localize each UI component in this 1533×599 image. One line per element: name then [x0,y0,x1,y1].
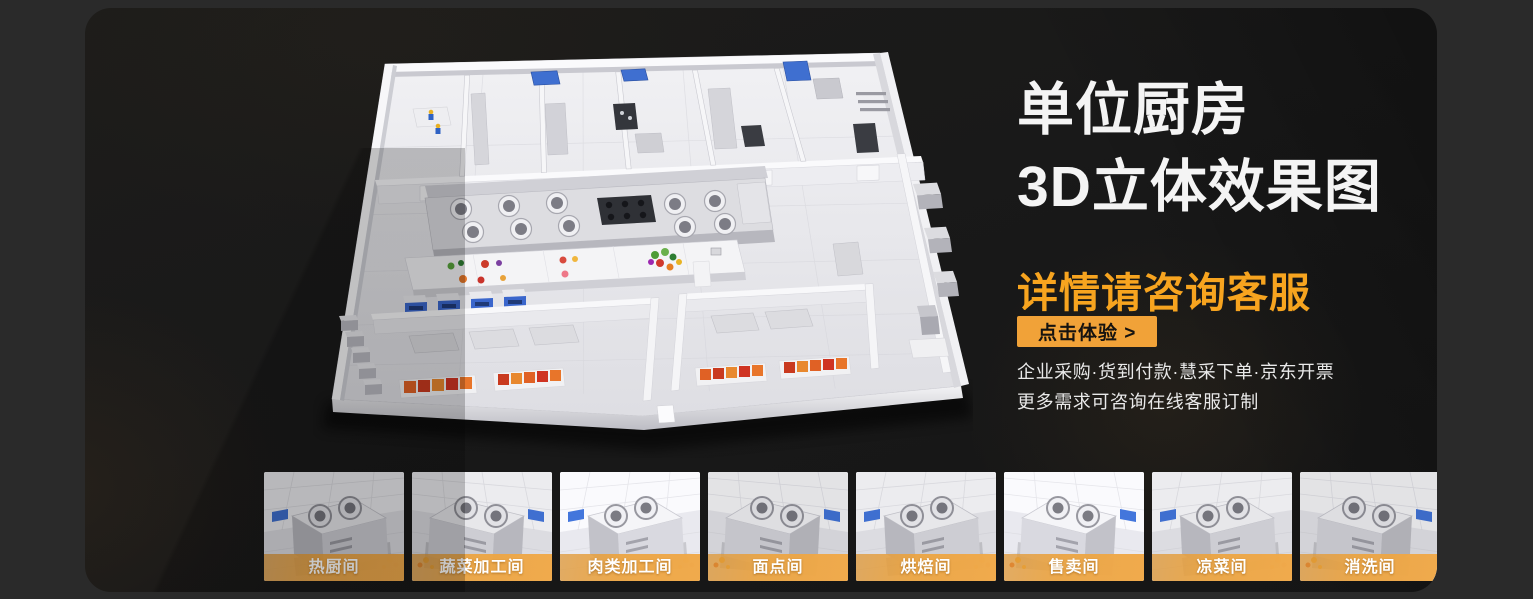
kitchen-area-thumbnail-3[interactable]: 肉类加工间 [560,472,700,581]
promo-banner: 单位厨房 3D立体效果图 详情请咨询客服 点击体验 > 企业采购·货到付款·慧采… [0,0,1533,599]
kitchen-thumb-label: 烘焙间 [856,554,996,581]
kitchen-area-thumbnail-8[interactable]: 消洗间 [1300,472,1437,581]
hero-description-line1: 企业采购·货到付款·慧采下单·京东开票 [1017,357,1334,387]
hero-title: 单位厨房 3D立体效果图 [1017,72,1382,226]
banner-panel: 单位厨房 3D立体效果图 详情请咨询客服 点击体验 > 企业采购·货到付款·慧采… [85,8,1437,592]
kitchen-thumb-label: 热厨间 [264,554,404,581]
kitchen-thumb-label: 蔬菜加工间 [412,554,552,581]
hero-subtitle: 详情请咨询客服 [1017,259,1311,319]
hero-title-line1: 单位厨房 [1017,72,1382,149]
kitchen-thumb-label: 面点间 [708,554,848,581]
kitchen-area-thumbnail-4[interactable]: 面点间 [708,472,848,581]
kitchen-area-thumbnail-1[interactable]: 热厨间 [264,472,404,581]
hero-description: 企业采购·货到付款·慧采下单·京东开票 更多需求可咨询在线客服订制 [1017,357,1334,417]
kitchen-area-thumbnails: 热厨间 [264,472,1437,581]
kitchen-thumb-label: 肉类加工间 [560,554,700,581]
kitchen-area-thumbnail-5[interactable]: 烘焙间 [856,472,996,581]
kitchen-area-thumbnail-7[interactable]: 凉菜间 [1152,472,1292,581]
kitchen-area-thumbnail-6[interactable]: 售卖间 [1004,472,1144,581]
kitchen-floorplan-illustration [313,34,973,458]
kitchen-thumb-label: 凉菜间 [1152,554,1292,581]
cta-button[interactable]: 点击体验 > [1017,316,1157,347]
kitchen-thumb-art [264,472,404,581]
hero-title-line2: 3D立体效果图 [1017,149,1382,226]
kitchen-3d-floorplan-image [313,34,973,458]
kitchen-area-thumbnail-2[interactable]: 蔬菜加工间 [412,472,552,581]
hero-description-line2: 更多需求可咨询在线客服订制 [1017,387,1334,417]
kitchen-thumb-label: 售卖间 [1004,554,1144,581]
kitchen-thumb-label: 消洗间 [1300,554,1437,581]
